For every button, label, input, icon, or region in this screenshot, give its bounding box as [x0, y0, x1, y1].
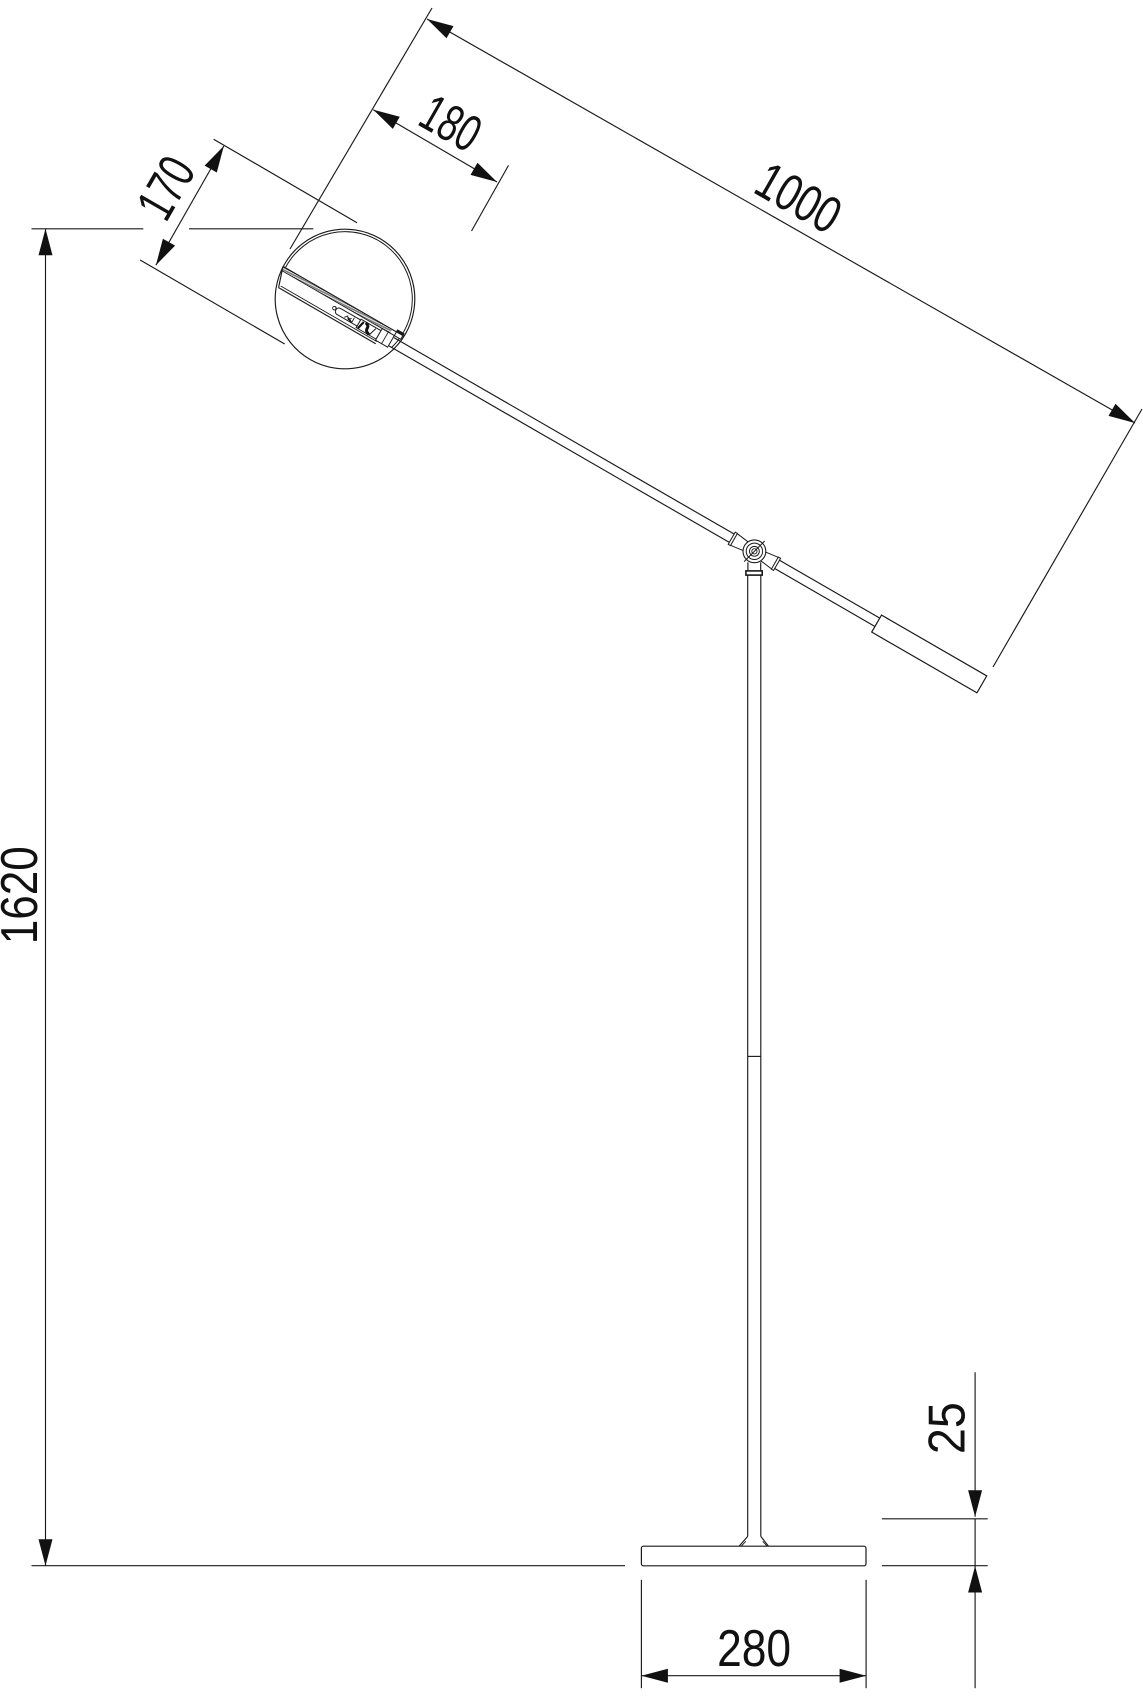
- svg-text:280: 280: [717, 1620, 791, 1678]
- svg-text:1620: 1620: [0, 846, 49, 944]
- svg-text:25: 25: [918, 1402, 976, 1454]
